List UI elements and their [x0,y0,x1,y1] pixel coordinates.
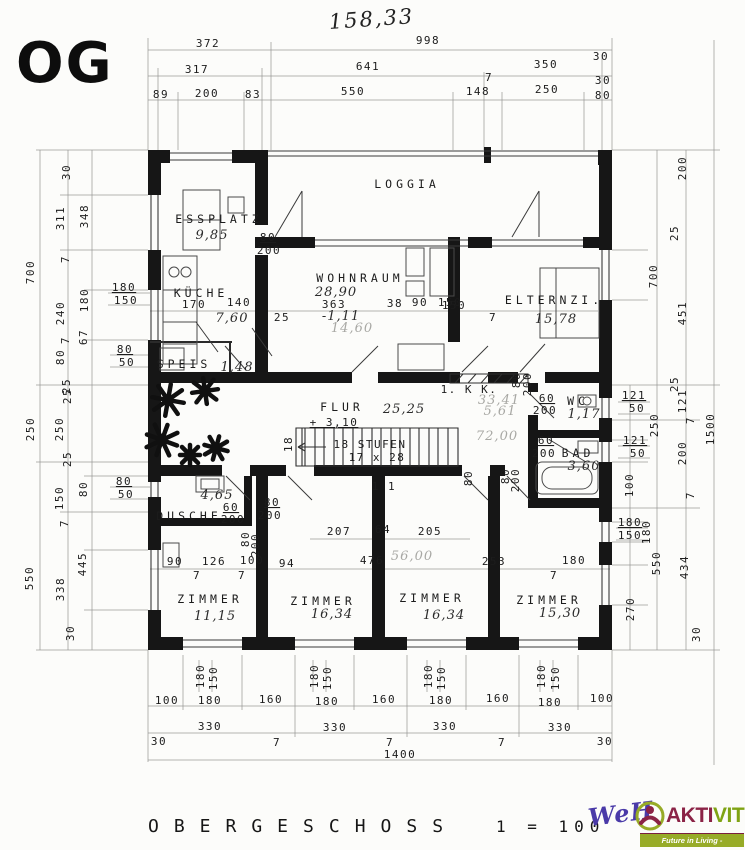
dim-label: 150 [618,529,642,542]
room-label-zimmer-2: ZIMMER [290,594,356,608]
labels-layer: 3729983176417350303089200835501482508070… [23,34,717,761]
dim-label: 434 [678,555,691,579]
dim-label: 50 [629,402,645,415]
dim-label: 330 [548,721,572,734]
dim-label: 25 [61,388,74,404]
dim-label: 121 [676,389,689,413]
dim-label: 80 [117,343,133,356]
dim-label: 100 [155,694,179,707]
logo-tagline: Future in Living - Immobilien. [640,833,744,847]
room-label-wohnraum: WOHNRAUM [316,271,403,285]
dim-label: 1500 [704,413,717,446]
dim-label: 83 [245,88,261,101]
dim-label: 150 [321,666,334,690]
dim-label: 180 [562,554,586,567]
stairs-rise-run-label: 17 x 28 [349,451,406,464]
dim-label: 7 [59,255,72,263]
dim-label: 1400 [384,748,417,761]
handwritten-total-note: 158,33 [328,4,415,34]
room-label-zimmer-4: ZIMMER [516,593,582,607]
area-essplatz: 9,85 [196,228,229,243]
dim-label: 7 [498,736,506,749]
room-label-elternzimmer: ELTERNZI. [505,293,603,307]
dim-label: 180 [538,696,562,709]
dim-label: 7 [273,736,281,749]
dim-label: 90 [167,555,183,568]
area-zimmer-3: 16,34 [423,608,465,623]
dim-label: 25 [668,225,681,241]
room-label-bad: BAD [562,446,595,460]
dim-label: 160 [372,693,396,706]
dim-label: 150 [53,486,66,510]
dim-label: 180 [429,694,453,707]
dim-label: 700 [647,264,660,288]
dim-label: 372 [196,37,220,50]
dim-label: 150 [114,294,138,307]
dim-label: 25 [274,311,290,324]
dim-label: 150 [549,666,562,690]
dim-label: 180 [640,520,653,544]
dim-label: 330 [433,720,457,733]
dim-label: 641 [356,60,380,73]
dim-label: 451 [676,301,689,325]
area-flur: 25,25 [382,402,425,417]
dim-label: 30 [64,625,77,641]
dim-label: 700 [24,260,37,284]
dim-label: 7 [193,569,201,582]
dim-label: 7 [238,569,246,582]
dim-label: 205 [418,525,442,538]
floor-code: OG [16,31,114,96]
room-label-dusche: DUSCHE [156,509,222,523]
dim-label: 150 [207,666,220,690]
dim-label: 200 [676,441,689,465]
dim-label: 5,61 [484,404,517,419]
dim-label: 200 [521,372,534,396]
dim-label: 250 [24,417,37,441]
dim-label: 14,60 [331,321,373,336]
dim-label: 170 [182,298,206,311]
area-bad: 3,60 [568,459,601,474]
area-speis: 1,48 [221,360,254,375]
room-label-speis: SPEIS [157,357,212,371]
dim-label: 160 [486,692,510,705]
dim-label: 250 [53,417,66,441]
dim-label: 94 [279,557,295,570]
dim-label: 180 [308,664,321,688]
dim-label: 200 [533,404,557,417]
dim-label: 180 [198,694,222,707]
logo-brand-left: AKTI [666,804,713,827]
dim-label: 50 [118,488,134,501]
logo-brand-right: VIT [713,804,744,827]
dim-label: 240 [54,301,67,325]
dim-label: 126 [202,555,226,568]
room-label-zimmer-1: ZIMMER [177,592,243,606]
dim-label: 100 [240,554,264,567]
room-label-essplatz: ESSPLATZ [175,212,262,226]
dim-label: 250 [535,83,559,96]
dim-label: 80 [595,89,611,102]
dim-label: 180 [78,288,91,312]
dim-label: 7 [550,569,558,582]
dim-label: 270 [624,597,637,621]
dim-label: 80 [462,470,475,486]
dim-label: 445 [76,552,89,576]
dim-label: 80 [77,481,90,497]
dim-label: 80 [264,496,280,509]
dim-label: 550 [341,85,365,98]
room-label-flur: FLUR [320,400,364,414]
dim-label: 72,00 [476,429,518,444]
dim-label: 100 [623,473,636,497]
dim-label: 80 [54,349,67,365]
dim-label: 25 [61,451,74,467]
dim-label: 80 [260,231,276,244]
dim-label: 250 [648,413,661,437]
dim-label: 1 1 [372,480,396,493]
dim-label: 100 [590,692,614,705]
dim-label: + 3,10 [310,416,359,429]
dim-label: 350 [534,58,558,71]
dim-label: 348 [78,204,91,228]
dim-label: 7 [684,416,697,424]
dim-label: 7 [485,71,493,84]
dim-label: 7 [58,519,71,527]
room-label-zimmer-3: ZIMMER [399,591,465,605]
dim-label: 30 [60,164,73,180]
dim-label: 80 [116,475,132,488]
area-wc: 1,17 [568,407,601,422]
dim-label: 338 [54,577,67,601]
dim-label: 90 [412,296,428,309]
dim-label: 200 [509,468,522,492]
dim-label: 550 [650,551,663,575]
dim-label: 30 [595,74,611,87]
dim-label: 476 [360,554,384,567]
dim-label: 18 [282,436,295,452]
dim-label: 30 [151,735,167,748]
area-zimmer-1: 11,15 [194,609,236,624]
dimension-lines [36,38,720,765]
dim-label: 7 [59,336,72,344]
room-label-loggia: LOGGIA [374,177,440,191]
dim-label: 67 [77,329,90,345]
dim-label: 30 [690,626,703,642]
dim-label: 150 [435,666,448,690]
dim-label: 7 [684,491,697,499]
dim-label: 317 [185,63,209,76]
dim-label: 200 [221,513,245,526]
company-logo: WeH AKTIVIT Future in Living - Immobilie… [588,795,745,850]
area-kueche: 7,60 [216,311,249,326]
dim-label: 550 [23,566,36,590]
dim-label: 160 [259,693,283,706]
dim-label: 50 [119,356,135,369]
dim-label: 121 [623,434,647,447]
dim-label: 7 [489,311,497,324]
dim-label: 253 [482,555,506,568]
dim-label: 50 [630,447,646,460]
plan-title: OBERGESCHOSS [148,816,458,837]
dim-label: 180 [535,664,548,688]
dim-label: 38 [387,297,403,310]
dim-label: 180 [618,516,642,529]
area-zimmer-2: 16,34 [311,607,353,622]
logo-person-icon [634,800,666,832]
room-label-wc: WC [567,394,589,408]
dim-label: 200 [676,156,689,180]
dim-label: 56,00 [391,549,433,564]
floorplan-canvas: OG 158,33 OBERGESCHOSS 1 = 100 372998317… [0,0,745,850]
dim-label: 200 [258,509,282,522]
dim-label: 998 [416,34,440,47]
dim-label: 180 [194,664,207,688]
dim-label: 180 [315,695,339,708]
dim-label: 330 [323,721,347,734]
area-zimmer-4: 15,30 [539,606,581,621]
dim-label: 180 [112,281,136,294]
dim-label: 207 [327,525,351,538]
dim-label: 89 [153,88,169,101]
area-elternzimmer: 15,78 [535,312,577,327]
dim-label: 200 [257,244,281,257]
dim-label: 200 [195,87,219,100]
dim-label: 30 [597,735,613,748]
dim-label: 60 [538,434,554,447]
dim-label: 148 [466,85,490,98]
dim-label: 121 [622,389,646,402]
stairs-count-label: 18 STUFEN [333,438,406,451]
dim-label: 140 [227,296,251,309]
dim-label: 30 [593,50,609,63]
dim-label: 330 [198,720,222,733]
dim-label: 150 [442,299,466,312]
dim-label: 311 [54,206,67,230]
dim-label: 180 [422,664,435,688]
dim-label: 200 [532,447,556,460]
dim-label: 64 [375,523,391,536]
logo-brand-text: AKTIVIT [666,804,744,828]
floorplan-page: OG 158,33 OBERGESCHOSS 1 = 100 372998317… [0,0,745,850]
